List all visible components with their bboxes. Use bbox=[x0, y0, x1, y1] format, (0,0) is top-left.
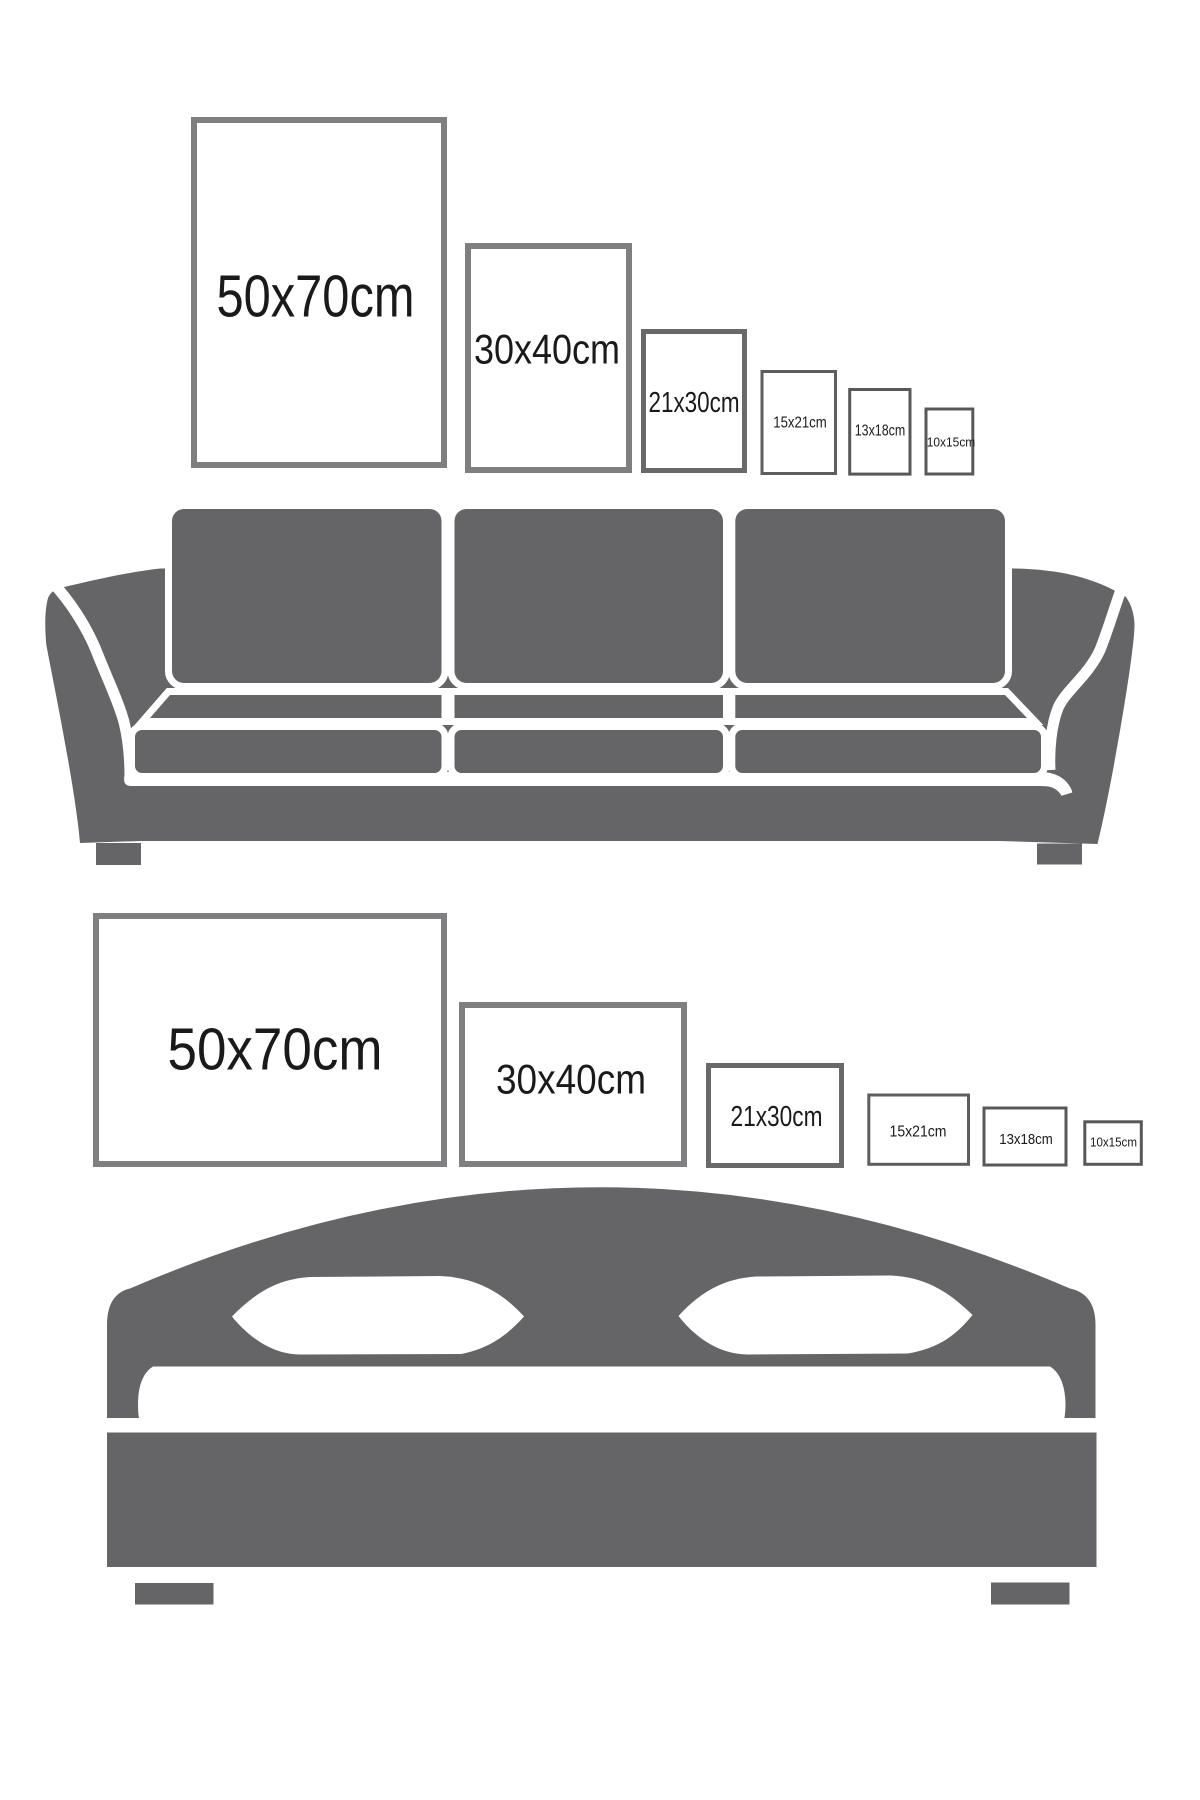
svg-text:15x21cm: 15x21cm bbox=[890, 1124, 947, 1141]
svg-text:21x30cm: 21x30cm bbox=[649, 387, 740, 419]
svg-text:50x70cm: 50x70cm bbox=[217, 264, 415, 330]
svg-text:10x15cm: 10x15cm bbox=[1090, 1135, 1137, 1150]
svg-text:13x18cm: 13x18cm bbox=[999, 1131, 1053, 1148]
svg-text:21x30cm: 21x30cm bbox=[731, 1101, 823, 1133]
svg-text:15x21cm: 15x21cm bbox=[773, 415, 827, 432]
svg-text:50x70cm: 50x70cm bbox=[168, 1017, 383, 1083]
svg-text:10x15cm: 10x15cm bbox=[927, 435, 976, 450]
svg-text:30x40cm: 30x40cm bbox=[496, 1056, 646, 1103]
svg-text:30x40cm: 30x40cm bbox=[474, 326, 620, 373]
svg-text:13x18cm: 13x18cm bbox=[855, 423, 906, 440]
